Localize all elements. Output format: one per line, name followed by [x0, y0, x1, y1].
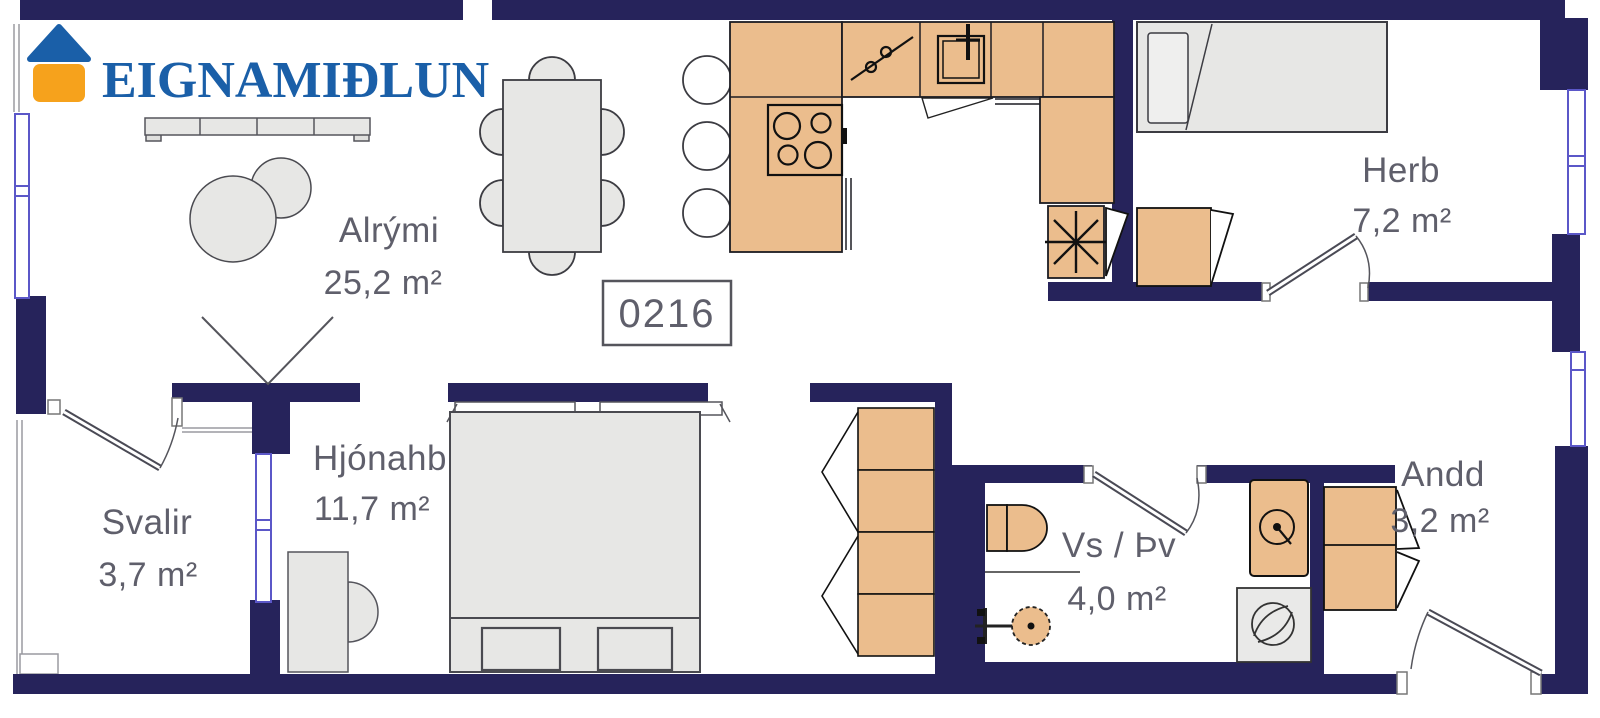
roof-icon: [30, 27, 88, 59]
chair: [480, 109, 503, 155]
door-herb: [1262, 236, 1370, 301]
house-icon: [24, 20, 94, 105]
room-area-vs-thv: 4,0 m²: [1067, 582, 1166, 616]
chair: [601, 180, 624, 226]
bed-drawer: [482, 628, 560, 670]
faucet-handle: [977, 609, 985, 616]
chair: [480, 180, 503, 226]
stove: [768, 105, 847, 175]
wall-closet-upper: [935, 400, 952, 468]
room-label-herb: Herb: [1362, 153, 1440, 188]
door-entrance: [1397, 612, 1541, 694]
stool: [683, 122, 731, 170]
room-label-alrymi: Alrými: [339, 213, 439, 248]
floor-plan-page: EIGNAMIÐLUN Alrými 25,2 m² Hjónahb 11,7 …: [0, 0, 1600, 718]
wardrobe-door-mark: [1397, 552, 1419, 608]
wall-mid-a-leg: [252, 400, 290, 454]
round-table: [190, 176, 276, 262]
double-bed: [450, 412, 700, 672]
cabinet-door-mark: [922, 98, 993, 118]
wall-svalir-right-lower: [250, 600, 280, 692]
room-area-svalir: 3,7 m²: [98, 558, 197, 592]
window-svalir: [256, 454, 271, 602]
wall-mid-b: [448, 383, 708, 402]
closet-box: [858, 470, 934, 532]
wall-closet-lower: [935, 465, 985, 676]
room-area-hjonahb: 11,7 m²: [314, 492, 430, 526]
window-living-left: [15, 114, 29, 298]
coffee-tables: [190, 158, 311, 262]
door-svalir: [48, 398, 182, 468]
wall-top-right: [492, 0, 1565, 20]
window-andd: [1571, 352, 1585, 446]
wall-bottom-main: [13, 674, 1397, 694]
brand-name: EIGNAMIÐLUN: [102, 58, 489, 105]
stool: [683, 189, 731, 237]
closet-box: [858, 532, 934, 594]
wash-basin: [975, 607, 1050, 645]
wall-right-lower: [1555, 446, 1588, 694]
counter-top: [842, 22, 1114, 97]
wall-top-right-corner: [1540, 18, 1588, 90]
wall-top-left: [20, 0, 463, 20]
wall-mid-a: [172, 383, 360, 402]
bar-stools: [683, 56, 731, 237]
wardrobe-herb: [1137, 208, 1233, 286]
pillow: [1148, 33, 1188, 123]
hall-closet: [822, 408, 934, 656]
wall-right-mid: [1552, 234, 1580, 352]
room-area-alrymi: 25,2 m²: [324, 266, 443, 300]
washing-machine: [1250, 480, 1308, 576]
dining-table: [503, 80, 601, 252]
desk-chair: [348, 582, 378, 642]
dining-set: [480, 57, 624, 275]
closet-door-mark: [822, 412, 858, 532]
toilet: [987, 505, 1047, 551]
chair: [529, 57, 575, 80]
kitchen: [683, 22, 1128, 278]
wall-bathroom-bottom: [985, 662, 1324, 676]
balcony-step: [20, 654, 58, 674]
closet-box: [858, 408, 934, 470]
bed-drawer: [598, 628, 672, 670]
closet-box: [858, 594, 934, 656]
wall-left-block: [16, 296, 46, 414]
faucet-handle: [977, 637, 985, 644]
stool: [683, 56, 731, 104]
room-area-herb: 7,2 m²: [1352, 204, 1451, 238]
brand-logo: EIGNAMIÐLUN: [24, 20, 489, 105]
desk: [288, 552, 378, 672]
wardrobe-door-mark: [1211, 210, 1233, 285]
wall-bath-andd-divider: [1310, 483, 1324, 676]
room-label-hjonahb: Hjónahb: [313, 441, 447, 476]
opening-mark: [202, 317, 333, 384]
sofa: [145, 118, 370, 141]
room-label-andd: Andd: [1401, 457, 1485, 492]
single-bed: [1137, 22, 1387, 132]
wall-mid-c: [810, 383, 952, 402]
room-area-andd: 3,2 m²: [1390, 504, 1489, 538]
counter-right: [1040, 97, 1114, 203]
dryer: [1237, 588, 1311, 662]
window-herb: [1568, 90, 1585, 234]
wall-bath-top-left: [985, 465, 1092, 483]
closet-door-mark: [822, 536, 858, 654]
chair: [529, 252, 575, 275]
herb-room-furniture: [1137, 22, 1387, 286]
wall-bottom-right: [1541, 674, 1588, 694]
chair: [601, 109, 624, 155]
wall-herb-bottom-right: [1368, 282, 1554, 301]
room-label-svalir: Svalir: [102, 505, 193, 540]
room-label-vs-thv: Vs / Þv: [1062, 528, 1176, 563]
stove-knobs: [843, 128, 847, 144]
house-body-icon: [33, 64, 85, 102]
door-bathroom: [1084, 466, 1206, 533]
unit-number: 0216: [619, 294, 716, 334]
